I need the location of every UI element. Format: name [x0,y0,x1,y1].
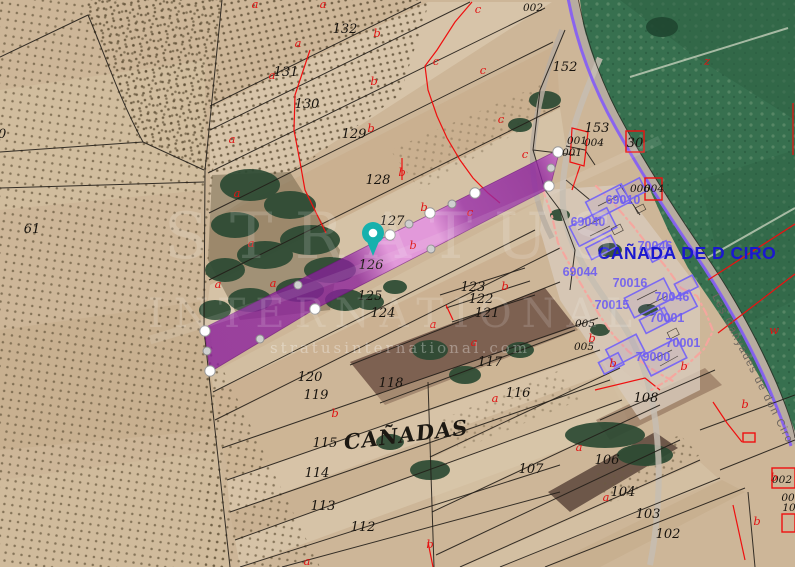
midpoint-handle[interactable] [203,347,211,355]
map-label: b [426,537,433,551]
map-label: b [370,74,377,88]
map-label: 61 [24,222,41,237]
vertex-handle[interactable] [205,366,215,376]
map-label: b [753,514,760,528]
map-label: a [304,554,311,567]
map-label: 152 [553,60,578,75]
map-label: a [229,132,236,146]
map-label: 104 [611,485,636,500]
map-label: 70016 [613,276,648,290]
map-label: 115 [313,436,338,451]
map-label: 106 [595,453,620,468]
map-label: 130 [295,97,320,112]
map-label: 116 [506,386,531,401]
map-label: 132 [333,22,358,37]
map-label: b [680,359,687,373]
map-label: b [373,26,380,40]
midpoint-handle[interactable] [547,164,555,172]
map-label: a [234,186,241,200]
map-label: a [576,440,583,454]
cadastral-map-viewport[interactable]: 1321311301291281271261251241231221211201… [0,0,795,567]
map-label: 131 [274,65,299,80]
map-label: 128 [366,173,391,188]
map-label: b [609,356,616,370]
map-label: b [331,406,338,420]
map-label: a [270,276,277,290]
vertex-handle[interactable] [470,188,480,198]
map-label: a [295,36,302,50]
map-label: 112 [351,520,376,535]
watermark-line2: INTERNATIONAL [148,291,642,337]
watermark-line1: STRATUS [164,200,636,274]
map-label: a [320,0,327,11]
map-label: c [522,147,529,161]
map-label: a [603,490,610,504]
map-label: b [398,165,405,179]
map-label: 113 [311,499,336,514]
map-label: c [498,112,505,126]
map-label: b [741,397,748,411]
map-label: 129 [342,127,367,142]
watermark-line3: stratusinternational.com [270,339,530,357]
map-label: a [215,277,222,291]
map-label: c [433,54,440,68]
map-label: 90 [0,127,6,142]
map-label: 118 [379,376,404,391]
map-label: 117 [478,355,504,370]
map-label: a [252,0,259,11]
map-label: 153 [585,121,610,136]
map-label: 103 [636,507,661,522]
map-label: a [269,68,276,82]
map-label: 002 [523,2,543,14]
map-label: a [492,391,499,405]
map-label: 108 [634,391,659,406]
map-label: 004 [584,137,604,149]
map-label: 70046 [655,290,690,304]
map-label: 102 [656,527,681,542]
map-label: z [703,54,711,68]
map-label: 114 [305,466,330,481]
map-label: 120 [298,370,323,385]
map-canvas[interactable]: 1321311301291281271261251241231221211201… [0,0,795,567]
map-label: 10 [782,502,795,514]
map-label: 79000 [636,350,671,364]
map-label: 119 [304,388,329,403]
map-label: 70001 [666,336,701,350]
map-label: c [475,2,482,16]
map-label: 001 [562,147,582,159]
map-label: 004 [644,183,664,195]
map-label: 107 [519,462,545,477]
map-label: w [769,323,779,337]
map-label: 70001 [650,311,685,325]
map-label: b [367,121,374,135]
map-label: b [770,470,777,484]
map-label: c [480,63,487,77]
